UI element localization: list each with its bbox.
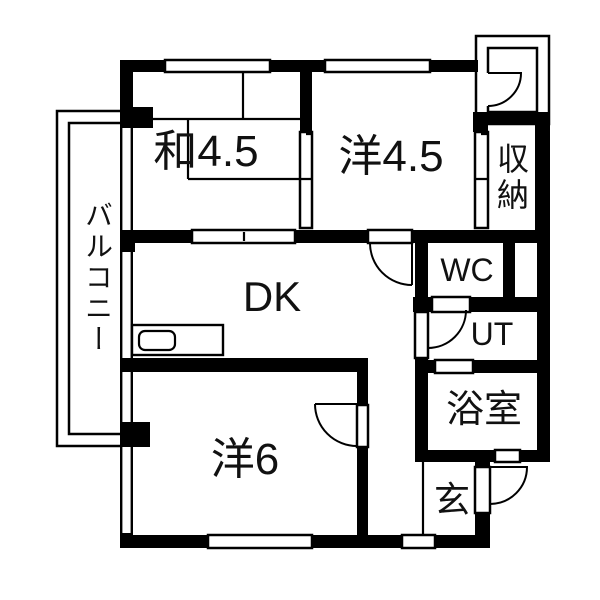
pipe-space xyxy=(515,245,537,297)
wall xyxy=(415,450,550,462)
wall xyxy=(537,230,550,462)
room-label-dk: DK xyxy=(243,276,301,318)
top-closet xyxy=(476,36,549,124)
wall xyxy=(503,243,515,300)
window xyxy=(165,60,270,72)
room-label-youshitsu6: 洋6 xyxy=(211,438,279,482)
wall xyxy=(475,513,490,535)
wall xyxy=(270,60,325,72)
top-closet-door-opening xyxy=(485,73,491,106)
wall xyxy=(120,535,208,548)
wall xyxy=(535,125,550,230)
room-label-balcony: バルコニー xyxy=(83,201,111,356)
room-label-wc: WC xyxy=(440,254,493,286)
room-label-genkan: 玄 xyxy=(434,482,470,518)
wall xyxy=(415,358,428,462)
wall xyxy=(120,422,150,447)
top-closet-inner-box xyxy=(488,48,537,112)
door-opening xyxy=(368,230,412,243)
wall xyxy=(312,535,402,548)
floorplan: 和4.5 洋4.5 収納 DK バルコニー WC UT 浴室 洋6 玄 xyxy=(0,0,600,600)
wall xyxy=(473,112,550,125)
wall xyxy=(415,243,428,300)
kitchen-sink xyxy=(139,331,175,350)
wall xyxy=(120,230,192,243)
wall xyxy=(430,60,478,72)
entrance-door-leaf xyxy=(475,467,490,513)
door-opening xyxy=(495,450,520,462)
wall xyxy=(295,230,367,243)
kitchen-counter xyxy=(132,325,223,355)
wall xyxy=(435,535,490,548)
room-label-washitsu: 和4.5 xyxy=(153,130,258,174)
wall xyxy=(357,372,368,535)
door-opening xyxy=(357,405,368,447)
room-label-youshitsu45: 洋4.5 xyxy=(338,135,443,179)
room-label-ut: UT xyxy=(471,318,514,350)
door-opening xyxy=(435,360,473,373)
window xyxy=(402,535,435,548)
wall xyxy=(120,107,153,128)
door-opening xyxy=(432,297,470,312)
room-label-bath: 浴室 xyxy=(446,391,522,429)
wall xyxy=(120,60,133,108)
wall xyxy=(300,60,312,132)
room-label-shuunou: 収納 xyxy=(495,142,527,214)
wall xyxy=(120,358,368,372)
wall xyxy=(412,230,550,243)
window xyxy=(325,60,430,72)
door-opening xyxy=(415,312,428,358)
window xyxy=(208,535,312,548)
